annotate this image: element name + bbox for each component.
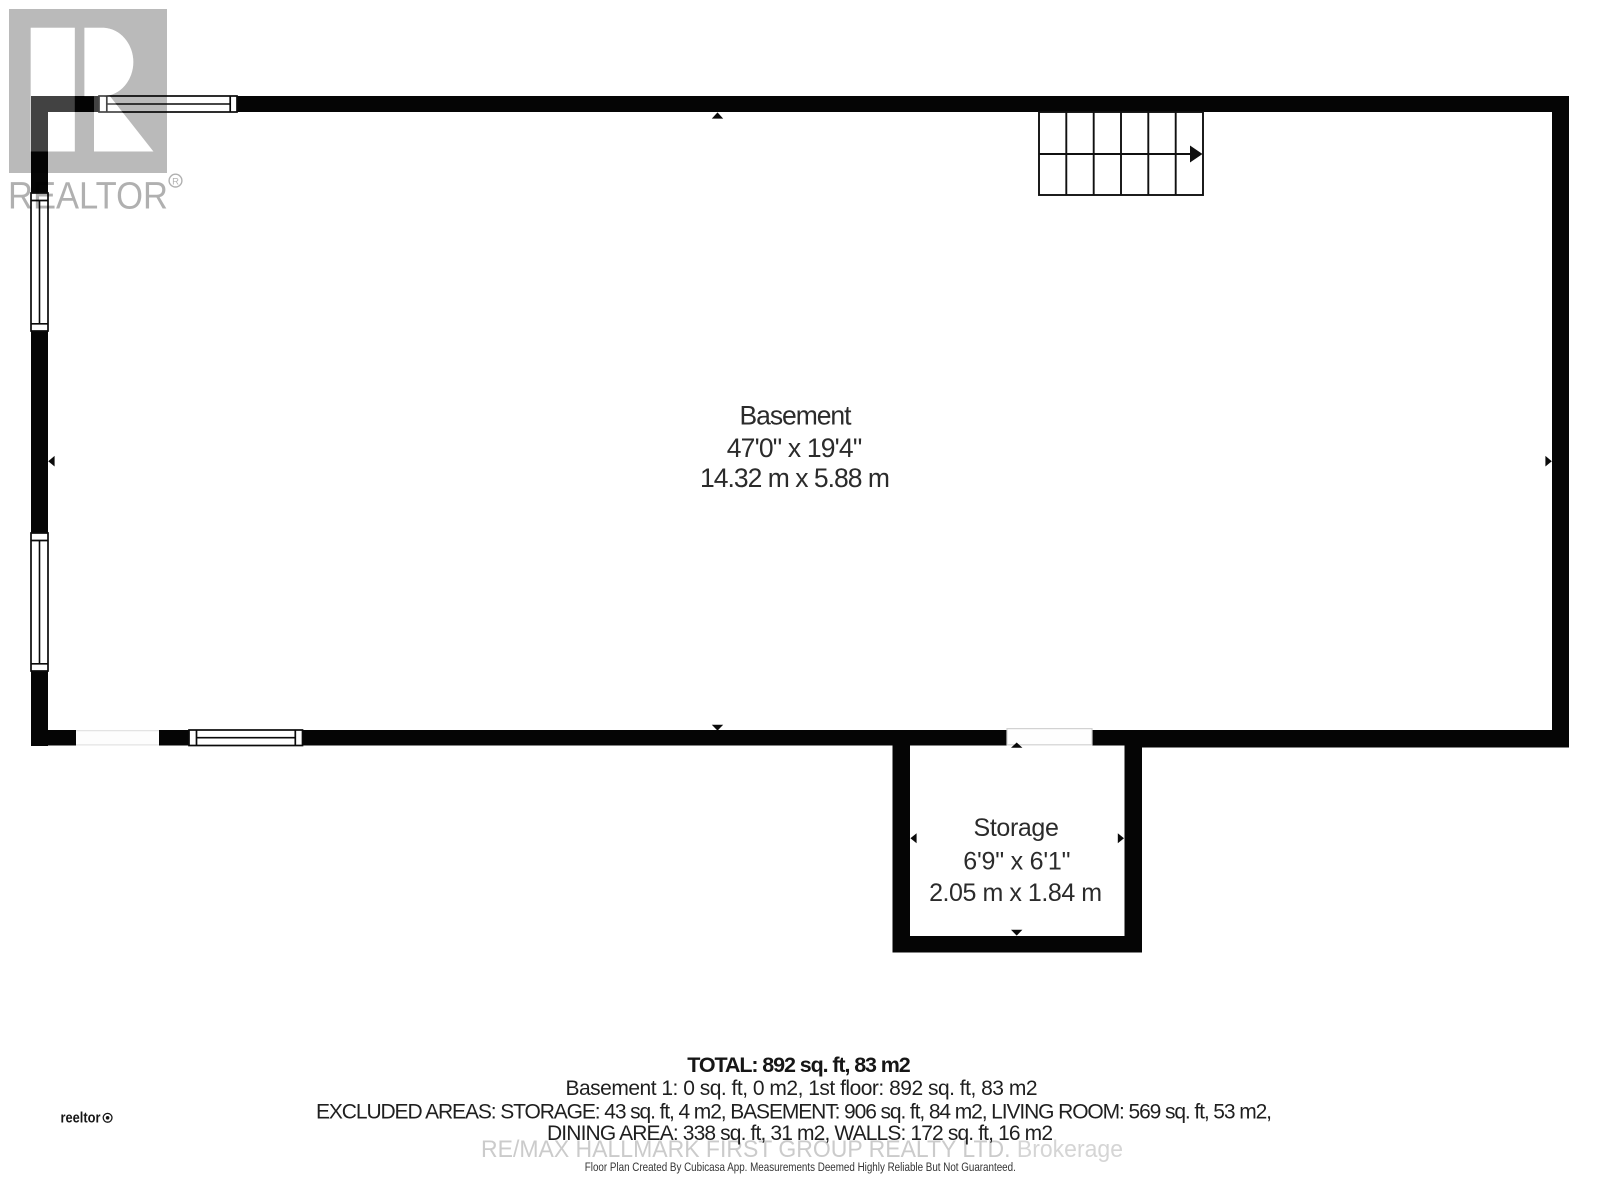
svg-text:TOTAL: 892 sq. ft, 83 m2: TOTAL: 892 sq. ft, 83 m2 <box>687 1053 911 1077</box>
svg-text:R: R <box>172 177 179 188</box>
svg-text:reeltor: reeltor <box>61 1110 101 1126</box>
svg-text:Basement: Basement <box>740 401 853 431</box>
svg-text:DINING AREA: 338 sq. ft, 31 m2: DINING AREA: 338 sq. ft, 31 m2, WALLS: 1… <box>547 1122 1053 1145</box>
svg-text:Basement 1: 0 sq. ft, 0 m2, 1s: Basement 1: 0 sq. ft, 0 m2, 1st floor: 8… <box>566 1077 1038 1100</box>
svg-text:Storage: Storage <box>974 814 1059 842</box>
svg-text:REALTOR: REALTOR <box>8 176 168 218</box>
svg-text:6'9" x 6'1": 6'9" x 6'1" <box>963 848 1070 876</box>
svg-text:14.32 m x 5.88 m: 14.32 m x 5.88 m <box>700 463 890 493</box>
svg-text:47'0" x 19'4": 47'0" x 19'4" <box>727 433 863 463</box>
svg-text:Floor Plan Created By Cubicasa: Floor Plan Created By Cubicasa App. Meas… <box>585 1160 1016 1174</box>
svg-text:EXCLUDED AREAS: STORAGE: 43 sq: EXCLUDED AREAS: STORAGE: 43 sq. ft, 4 m2… <box>316 1101 1272 1124</box>
svg-text:2.05 m x 1.84 m: 2.05 m x 1.84 m <box>929 879 1102 907</box>
